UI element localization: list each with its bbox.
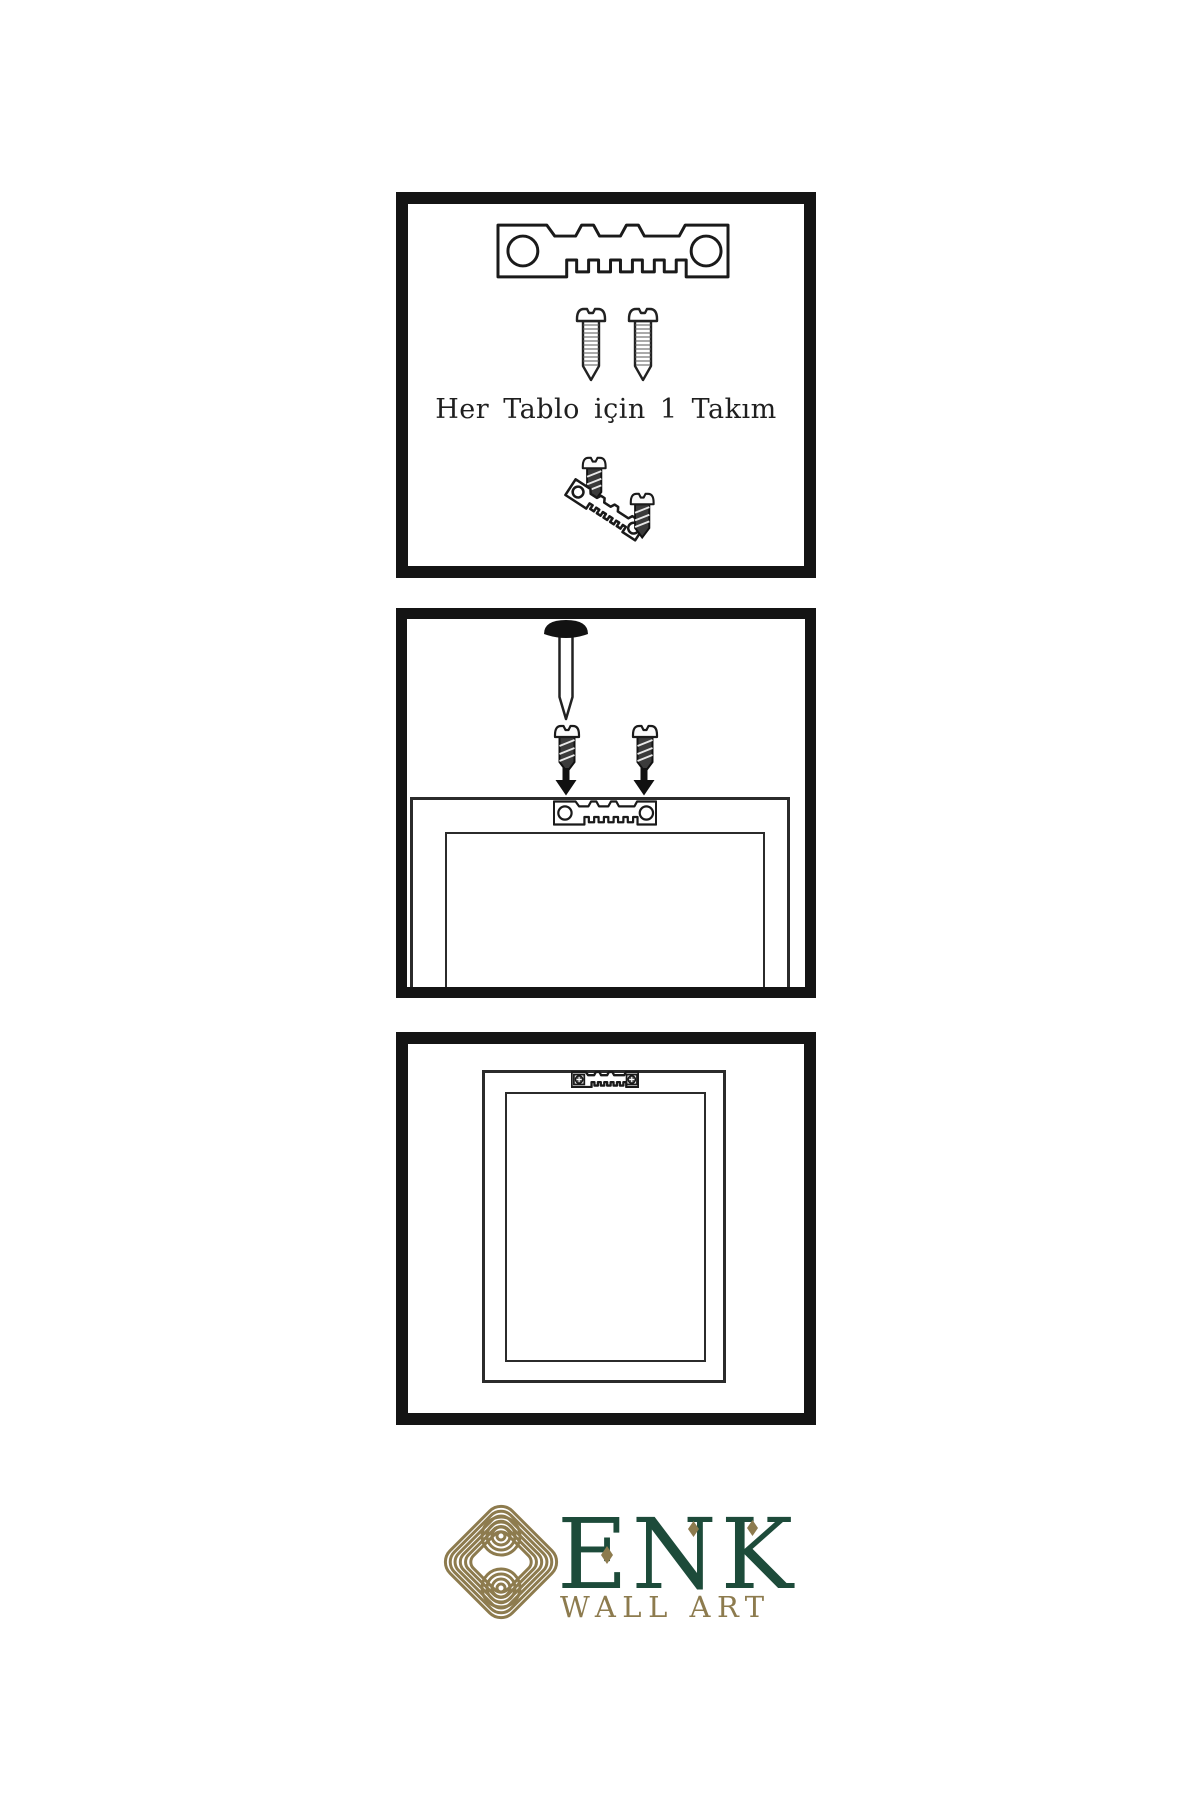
brand-name: ENK [557,1506,797,1603]
panel-hardware-kit: Her Tablo için 1 Takım [396,192,816,578]
arrow-down-icon [633,768,655,796]
sawtooth-hanger-installed-icon [571,1071,639,1088]
arrow-down-icon [555,768,577,796]
nail-icon [543,619,589,723]
instruction-sheet: Her Tablo için 1 Takım [0,0,1200,1800]
screw-icon [551,722,581,774]
panel-mounted-frame [396,1032,816,1425]
sawtooth-hanger-icon [553,800,657,826]
panel-wall-mounting [396,608,816,998]
screw-icon [629,722,659,774]
picture-frame-inner [445,832,765,998]
screw-icon [626,304,660,384]
kit-caption: Her Tablo için 1 Takım [408,394,804,425]
screw-icon [574,304,608,384]
brand-subtitle: WALL ART [560,1593,771,1622]
sawtooth-hanger-icon [496,222,730,280]
picture-frame-inner [505,1092,706,1362]
hanger-assembly-icon [555,450,665,564]
knot-emblem-icon [437,1498,565,1626]
